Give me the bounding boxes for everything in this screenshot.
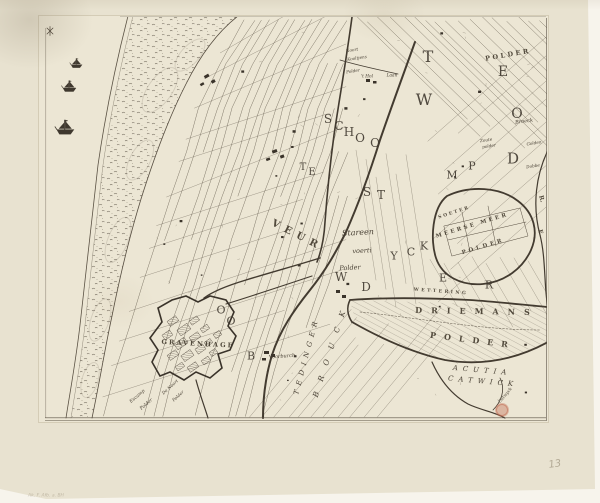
engraved-map bbox=[0, 0, 600, 503]
collector-stamp bbox=[495, 403, 509, 417]
scanned-map-photo: TWEODMPSCHOOSTTEYCKWDOOBERPOLDERDRIEMANS… bbox=[0, 0, 600, 503]
